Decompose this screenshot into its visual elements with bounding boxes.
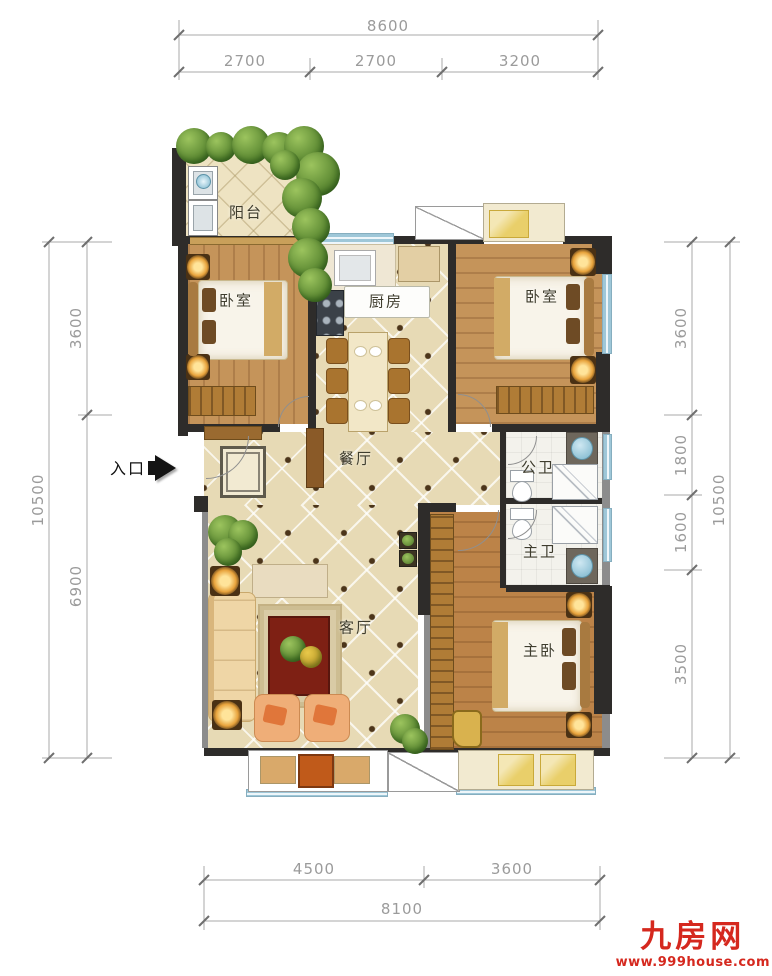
window	[602, 274, 612, 354]
plate	[354, 346, 367, 357]
window	[603, 434, 612, 480]
bed-headboard	[584, 278, 594, 356]
balcony-sill	[190, 237, 304, 245]
laundry-cabinet	[188, 200, 218, 236]
entrance-arrow-icon	[155, 455, 176, 481]
plant	[298, 268, 332, 302]
potted-plant	[399, 532, 417, 549]
window-cushion	[498, 754, 534, 786]
dim-right-seg2: 1800	[672, 434, 690, 476]
wardrobe	[188, 386, 256, 416]
ac-unit-symbol-top	[415, 206, 485, 240]
dim-left-seg2: 6900	[67, 565, 85, 607]
tv-cabinet	[334, 756, 370, 784]
sink-basin	[571, 554, 593, 578]
bar-shelf	[306, 428, 324, 488]
dim-left-total: 10500	[29, 474, 47, 527]
tv-cabinet	[260, 756, 296, 784]
toilet-bowl	[512, 481, 532, 502]
dim-bottom-seg2: 3600	[491, 860, 533, 878]
dim-right-seg3: 1600	[672, 511, 690, 553]
watermark-site: www.999house.com	[616, 955, 770, 970]
plate	[369, 400, 382, 411]
console-table	[252, 564, 328, 598]
dining-chair	[388, 398, 410, 424]
potted-plant	[399, 550, 417, 567]
entrance-arrow-icon	[148, 461, 155, 475]
bed-throw	[494, 278, 510, 356]
label-living: 客厅	[339, 617, 373, 638]
pillow	[202, 320, 216, 344]
label-bedroom-right: 卧室	[525, 286, 559, 307]
dim-right-seg4: 3500	[672, 643, 690, 685]
wall	[448, 244, 456, 432]
shower	[552, 464, 598, 500]
accent-chair	[452, 710, 482, 748]
table-flowers	[300, 646, 322, 668]
watermark-brand: 九房网	[616, 922, 770, 953]
label-kitchen: 厨房	[369, 291, 403, 312]
kitchen-sink	[334, 250, 376, 286]
bed-throw	[492, 622, 508, 708]
label-balcony: 阳台	[229, 202, 263, 223]
label-entrance: 入口	[110, 455, 146, 479]
wall	[594, 586, 612, 714]
wall	[492, 424, 610, 432]
dim-top-total: 8600	[367, 17, 409, 35]
pillow	[202, 288, 216, 312]
nightstand-lamp	[186, 354, 210, 380]
dining-chair	[326, 368, 348, 394]
dining-chair	[388, 338, 410, 364]
label-master-bedroom: 主卧	[523, 640, 557, 661]
bed-headboard	[188, 282, 198, 356]
plant	[270, 150, 300, 180]
plate	[354, 400, 367, 411]
tv-stand	[298, 754, 334, 788]
nightstand-lamp	[186, 254, 210, 280]
pillow	[562, 662, 576, 690]
side-table-lamp	[210, 566, 240, 596]
ac-unit-symbol-bottom	[388, 752, 460, 792]
nightstand-lamp	[566, 712, 592, 738]
window-cushion	[489, 210, 529, 238]
label-bedroom-left: 卧室	[219, 290, 253, 311]
wall	[596, 352, 610, 430]
dim-left-seg1: 3600	[67, 307, 85, 349]
dim-top-seg1: 2700	[224, 52, 266, 70]
dim-right-total: 10500	[710, 474, 728, 527]
nightstand-lamp	[566, 592, 592, 618]
wall	[500, 432, 506, 588]
shower	[552, 506, 598, 544]
bed-throw	[264, 282, 282, 356]
nightstand-lamp	[570, 248, 596, 276]
label-dining: 餐厅	[339, 448, 373, 469]
wall	[172, 148, 186, 246]
window	[603, 508, 612, 562]
wardrobe	[430, 514, 454, 750]
sink-basin	[571, 437, 593, 460]
label-bath-master: 主卫	[523, 541, 557, 562]
dim-top-seg3: 3200	[499, 52, 541, 70]
dining-chair	[388, 368, 410, 394]
dining-chair	[326, 338, 348, 364]
dim-bottom-seg1: 4500	[293, 860, 335, 878]
plate	[369, 346, 382, 357]
dim-top-seg2: 2700	[355, 52, 397, 70]
washing-machine	[188, 166, 218, 200]
pillow	[566, 284, 580, 310]
wall	[194, 496, 208, 512]
dim-right-seg1: 3600	[672, 307, 690, 349]
nightstand-lamp	[570, 356, 596, 384]
bed-headboard	[580, 622, 590, 708]
wall	[418, 503, 430, 615]
wardrobe	[496, 386, 594, 414]
window-cushion	[540, 754, 576, 786]
pillow	[566, 318, 580, 344]
plant	[214, 538, 242, 566]
plant	[402, 728, 428, 754]
fridge	[398, 246, 440, 282]
pillow	[562, 628, 576, 656]
dining-table	[348, 332, 388, 432]
dim-bottom-total: 8100	[381, 900, 423, 918]
dining-chair	[326, 398, 348, 424]
side-table-lamp	[212, 700, 242, 730]
label-bath-public: 公卫	[521, 457, 555, 478]
floor-plan-canvas: 8600 2700 2700 3200 3600 6900 10500 3600…	[0, 0, 772, 976]
watermark: 九房网 www.999house.com	[616, 922, 770, 970]
